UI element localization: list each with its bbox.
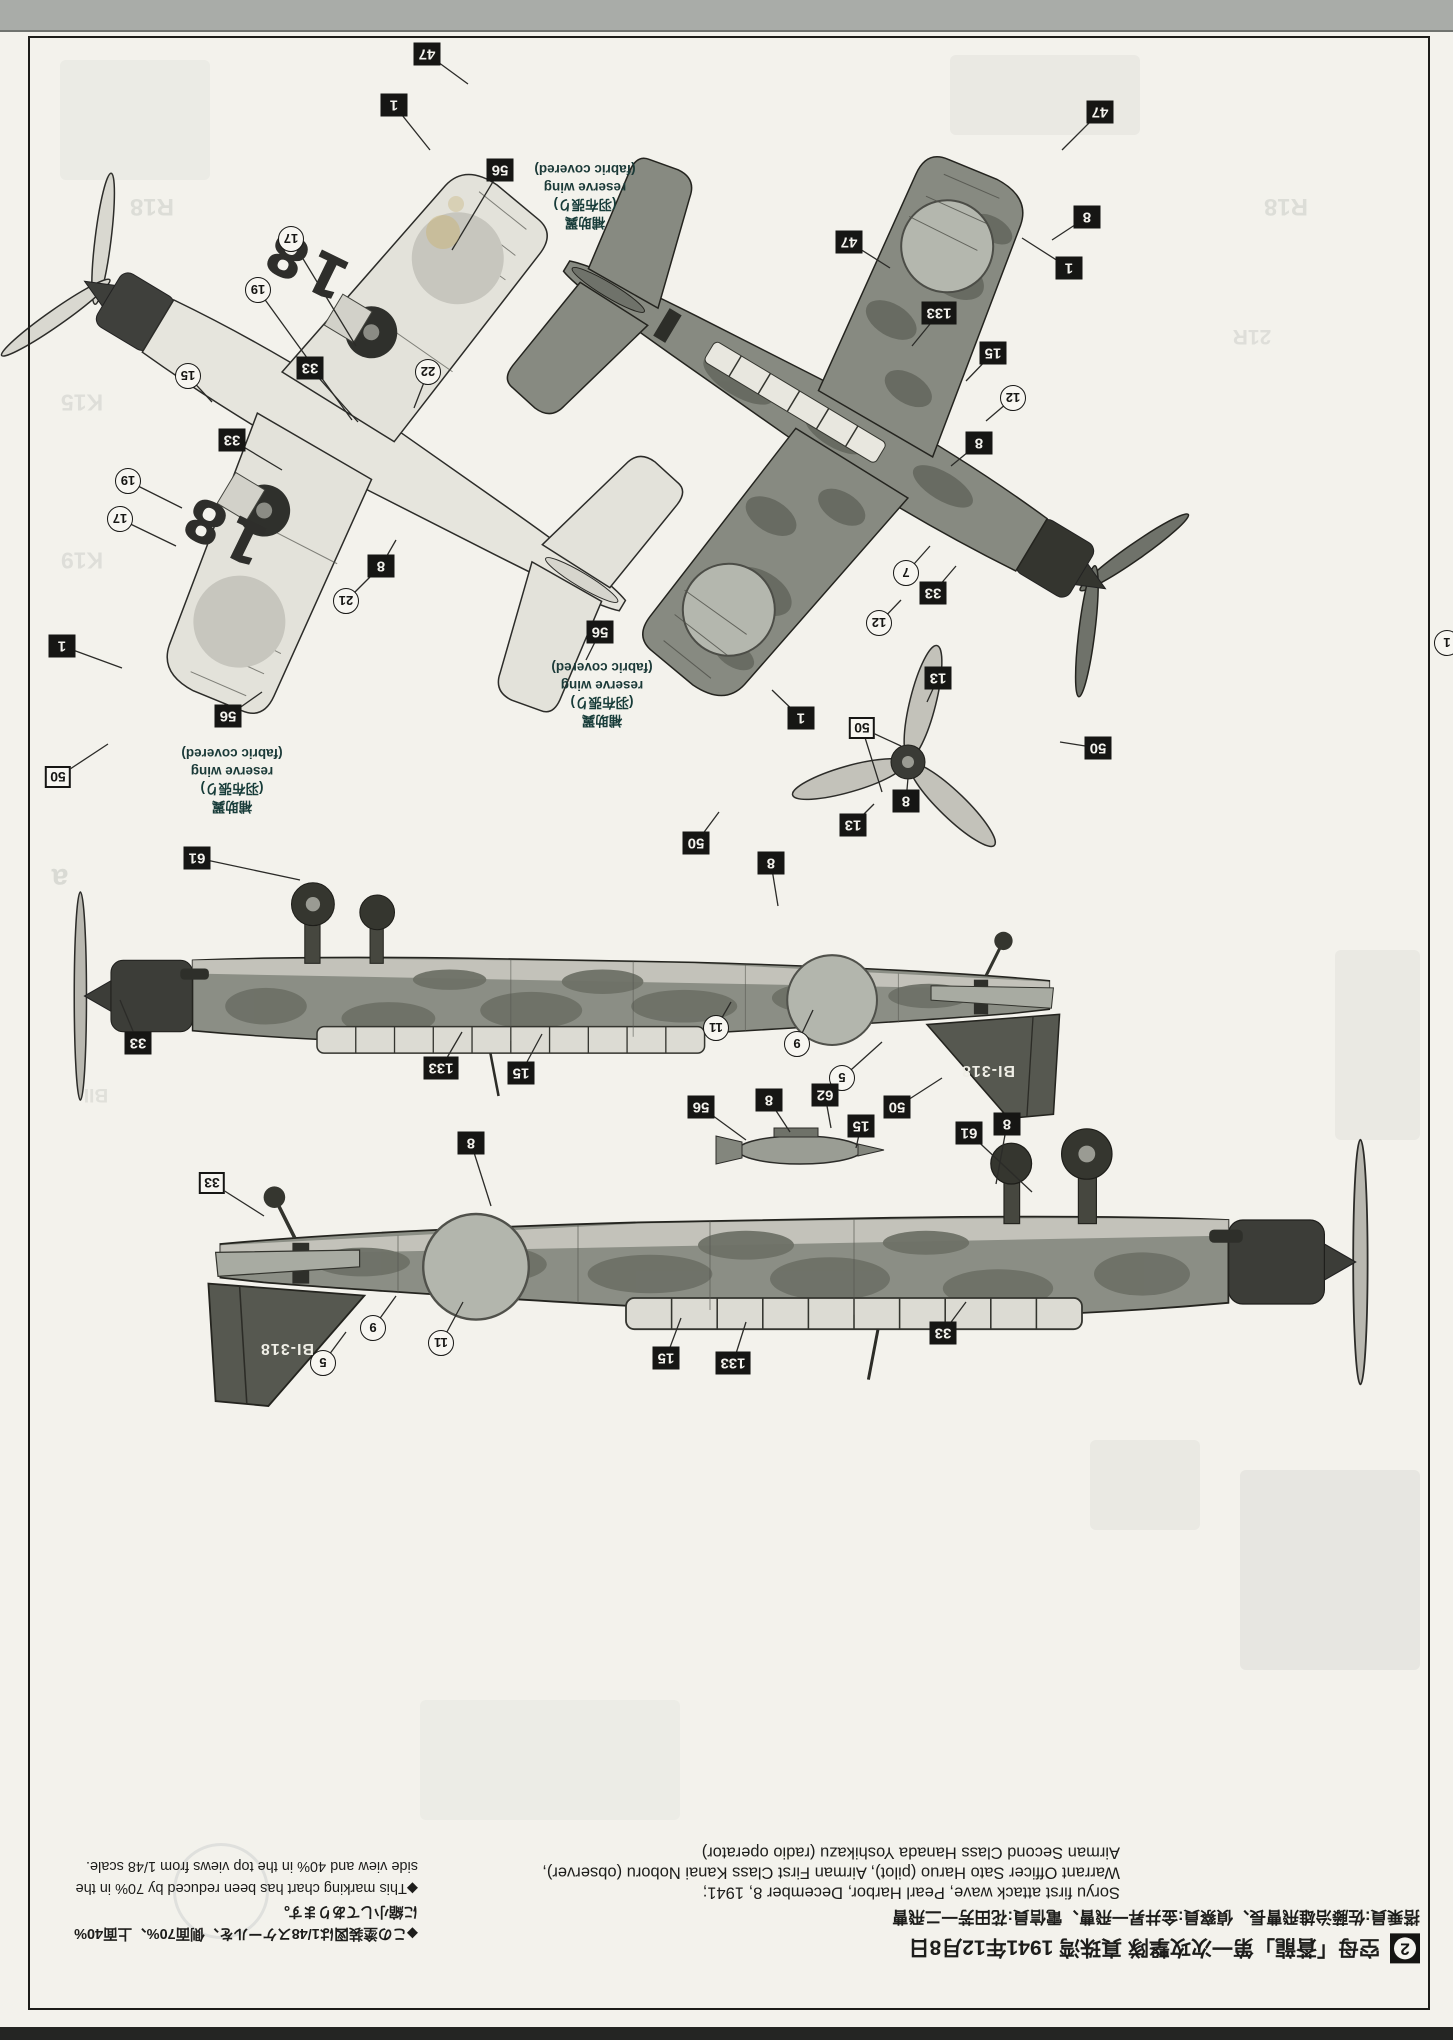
callout-33-8: 33	[219, 429, 246, 452]
tail-code-1: BI-318	[260, 1339, 314, 1357]
paper-stain-1	[448, 196, 464, 212]
scale-note-en-line1: ◆This marking chart has been reduced by …	[56, 1876, 418, 1898]
callout-15-56: 15	[653, 1347, 680, 1370]
callout-21-12: 21	[333, 588, 359, 614]
paper-stain-0	[426, 215, 460, 249]
callout-8-47: 8	[756, 1089, 783, 1112]
callout-33-38: 33	[125, 1032, 152, 1055]
callout-33-52: 33	[199, 1172, 225, 1194]
callout-56-46: 56	[688, 1096, 715, 1119]
callout-12-27: 12	[866, 610, 892, 636]
callout-8-18: 8	[1074, 206, 1101, 229]
callout-56-2: 56	[487, 159, 514, 182]
callout-50-34: 50	[1085, 737, 1112, 760]
callout-50-44: 50	[884, 1096, 911, 1119]
callout-1-20: 1	[1056, 257, 1083, 280]
callout-47-17: 47	[1087, 101, 1114, 124]
callout-17-3: 17	[278, 226, 304, 252]
instruction-sheet-page: 4715617193315223319178215615650478471133…	[0, 0, 1453, 2040]
callout-8-45: 8	[994, 1113, 1021, 1136]
caption-en-line2: Warrant Officer Sato Haruo (pilot), Airm…	[420, 1862, 1120, 1882]
callout-5-55: 5	[310, 1350, 336, 1376]
callout-47-19: 47	[836, 231, 863, 254]
callout-8-24: 8	[966, 432, 993, 455]
callout-19-9: 19	[115, 468, 141, 494]
show-through-text-1: R18	[1264, 192, 1308, 220]
show-through-patch-0	[1240, 1470, 1420, 1670]
callout-11-54: 11	[428, 1330, 454, 1356]
callout-11-41: 11	[703, 1015, 729, 1041]
callout-15-49: 15	[848, 1115, 875, 1138]
callout-8-31: 8	[893, 790, 920, 813]
callout-133-39: 133	[423, 1057, 458, 1080]
caption-header: 2 空母「蒼龍」第一次攻撃隊 真珠湾 1941年12月8日	[420, 1933, 1420, 1963]
callout-19-4: 19	[245, 277, 271, 303]
callout-7-25: 7	[893, 560, 919, 586]
scan-edge-bottom	[0, 2027, 1453, 2040]
reserve-wing-label-1: 補助翼(羽布張り)reserve wing(fabric covered)	[551, 659, 652, 729]
callout-17-10: 17	[107, 506, 133, 532]
caption-en-line3: Airman Second Class Hanada Yoshikazu (ra…	[420, 1842, 1120, 1862]
callout-15-22: 15	[980, 342, 1007, 365]
callout-50-28: 50	[849, 717, 875, 739]
step-number-badge: 2	[1390, 1933, 1420, 1963]
show-through-patch-5	[420, 1700, 680, 1820]
caption-en-line1: Soryu first attack wave, Pearl Harbor, D…	[420, 1882, 1120, 1902]
scale-note-block: ◆この塗装図は1/48スケールを、側面70%、上面40% に縮小してあります。 …	[56, 1854, 418, 1944]
callout-8-37: 8	[758, 852, 785, 875]
callout-1-30: 1	[788, 707, 815, 730]
show-through-text-6: BII	[84, 1083, 108, 1105]
reserve-wing-label-2: 補助翼(羽布張り)reserve wing(fabric covered)	[181, 745, 282, 815]
callout-9-53: 9	[360, 1315, 386, 1341]
callout-8-51: 8	[458, 1132, 485, 1155]
callout-61-50: 61	[956, 1122, 983, 1145]
show-through-text-3: K15	[61, 389, 103, 416]
show-through-text-5: a	[52, 861, 69, 895]
callout-61-36: 61	[184, 847, 211, 870]
step-number: 2	[1394, 1937, 1416, 1959]
callout-133-57: 133	[715, 1352, 750, 1375]
show-through-text-0: R18	[130, 192, 174, 220]
callout-33-58: 33	[930, 1322, 957, 1345]
callout-12-23: 12	[1000, 385, 1026, 411]
callout-56-13: 56	[587, 621, 614, 644]
callout-13-29: 13	[925, 667, 952, 690]
show-through-text-4: K19	[61, 547, 103, 574]
caption-crew-ja: 搭乗員:佐藤治雄飛曹長、偵察員:金井昇一飛曹、電信員:花田芳一二飛曹	[420, 1906, 1420, 1930]
scale-note-ja-line1: ◆この塗装図は1/48スケールを、側面70%、上面40%	[56, 1921, 418, 1943]
callout-56-15: 56	[215, 705, 242, 728]
sheet-border	[28, 36, 1430, 2010]
callout-33-26: 33	[920, 582, 947, 605]
callout-15-40: 15	[508, 1062, 535, 1085]
callout-33-5: 33	[297, 357, 324, 380]
caption-title-ja: 空母「蒼龍」第一次攻撃隊 真珠湾 1941年12月8日	[909, 1933, 1380, 1963]
callout-1-1: 1	[381, 94, 408, 117]
callout-50-16: 50	[45, 766, 71, 788]
callout-22-7: 22	[415, 359, 441, 385]
callout-47-0: 47	[414, 43, 441, 66]
callout-9-42: 9	[784, 1031, 810, 1057]
callout-15-6: 15	[175, 363, 201, 389]
show-through-patch-2	[1335, 950, 1420, 1140]
reserve-wing-label-0: 補助翼(羽布張り)reserve wing(fabric covered)	[534, 161, 635, 231]
show-through-text-2: 21R	[1233, 324, 1272, 348]
scale-note-ja-line2: に縮小してあります。	[56, 1899, 418, 1921]
scan-edge-top	[0, 0, 1453, 32]
callout-133-21: 133	[921, 302, 956, 325]
tail-code-0: BI-318	[961, 1061, 1015, 1079]
callout-1-14: 1	[49, 635, 76, 658]
show-through-patch-1	[1090, 1440, 1200, 1530]
callout-1-35: 1	[1434, 630, 1453, 656]
scale-note-en-line2: side view and 40% in the top views from …	[56, 1854, 418, 1876]
show-through-patch-3	[60, 60, 210, 180]
callout-8-11: 8	[368, 555, 395, 578]
callout-62-48: 62	[812, 1084, 839, 1107]
callout-13-32: 13	[840, 814, 867, 837]
callout-50-33: 50	[683, 832, 710, 855]
caption-block: 2 空母「蒼龍」第一次攻撃隊 真珠湾 1941年12月8日 搭乗員:佐藤治雄飛曹…	[420, 1842, 1420, 1963]
